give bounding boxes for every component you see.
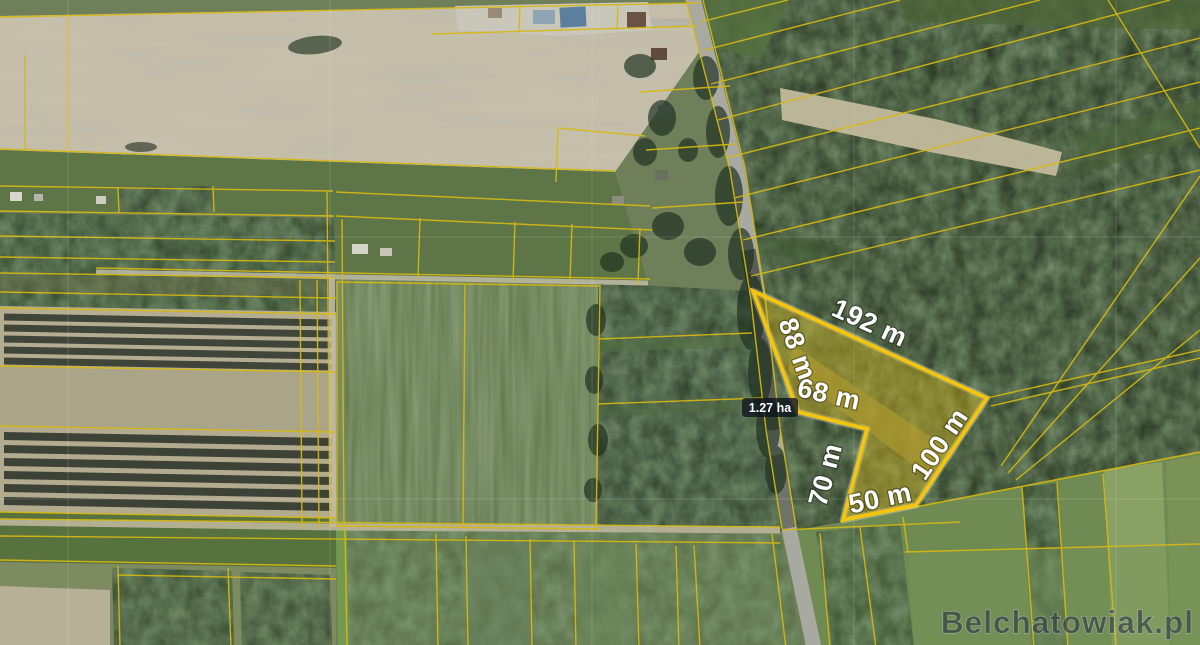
- area-badge: 1.27 ha: [742, 398, 798, 417]
- area-badge-label: 1.27 ha: [749, 401, 792, 415]
- watermark: Belchatowiak.pl: [941, 604, 1194, 640]
- map-viewport[interactable]: 192 m 88 m 68 m 70 m 50 m 100 m 1.27 ha …: [0, 0, 1200, 645]
- satellite-map: 192 m 88 m 68 m 70 m 50 m 100 m 1.27 ha …: [0, 0, 1200, 645]
